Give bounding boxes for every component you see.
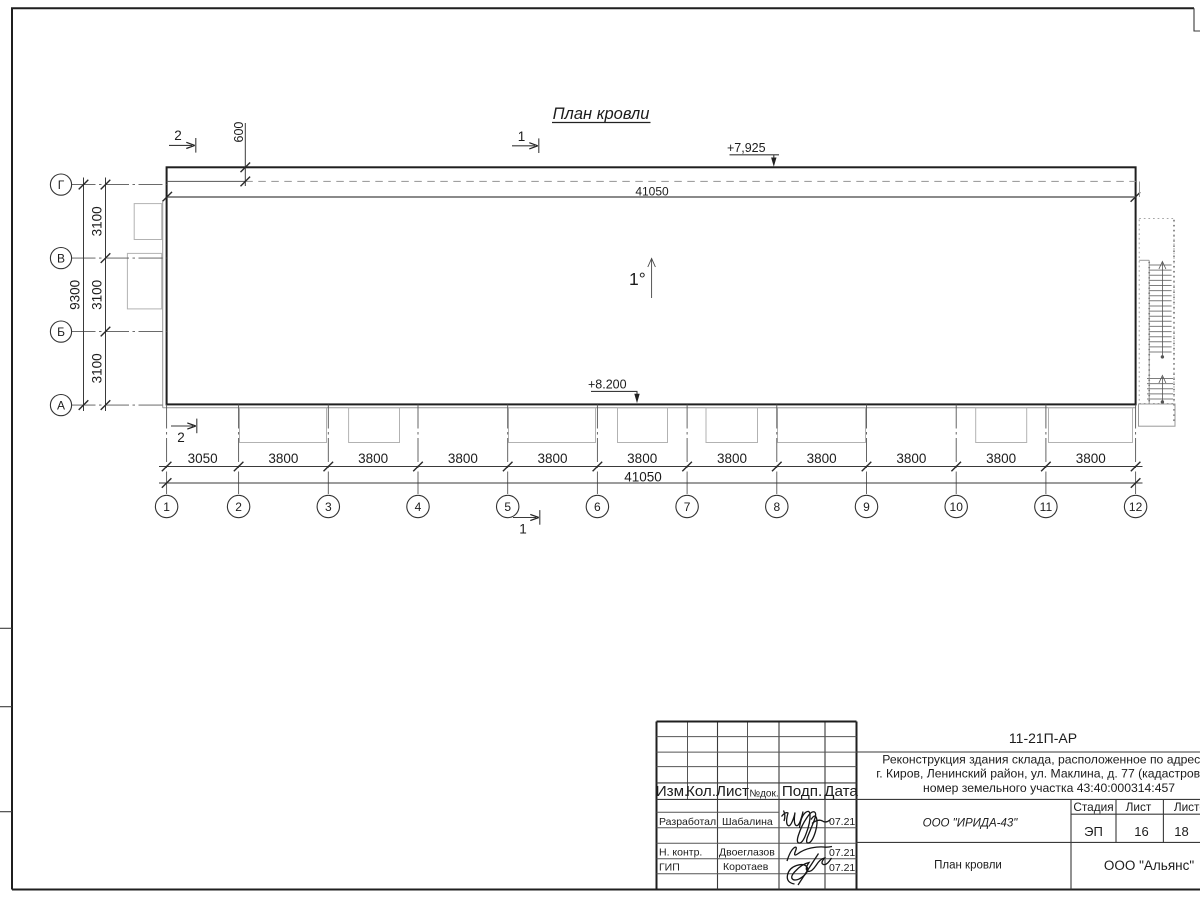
svg-text:11: 11	[1040, 500, 1053, 514]
svg-text:Лист: Лист	[716, 783, 749, 800]
svg-text:Кол.: Кол.	[686, 783, 716, 800]
svg-text:Листов: Листов	[1174, 800, 1200, 814]
svg-text:+7,925: +7,925	[727, 141, 766, 155]
svg-text:Двоеглазов: Двоеглазов	[719, 847, 775, 859]
svg-text:8: 8	[773, 500, 780, 514]
svg-text:ООО "Альянс": ООО "Альянс"	[1104, 858, 1194, 873]
svg-text:10: 10	[950, 500, 964, 514]
svg-text:3800: 3800	[627, 451, 657, 466]
svg-text:9300: 9300	[68, 280, 83, 310]
svg-text:ООО "ИРИДА-43": ООО "ИРИДА-43"	[923, 818, 1019, 830]
svg-text:18: 18	[1174, 824, 1188, 839]
svg-text:3800: 3800	[896, 451, 926, 466]
svg-text:В: В	[57, 252, 65, 266]
svg-text:План кровли: План кровли	[553, 105, 650, 123]
svg-text:А: А	[57, 399, 65, 413]
svg-text:3800: 3800	[537, 451, 567, 466]
svg-text:Лист: Лист	[1126, 800, 1152, 814]
svg-text:Г: Г	[58, 178, 65, 192]
svg-text:ГИП: ГИП	[659, 862, 680, 874]
svg-text:Подп.: Подп.	[782, 783, 822, 800]
svg-text:3800: 3800	[986, 451, 1016, 466]
svg-text:1: 1	[519, 522, 527, 537]
svg-text:Шабалина: Шабалина	[722, 816, 773, 828]
svg-text:Б: Б	[57, 325, 65, 339]
svg-text:2: 2	[174, 128, 182, 143]
svg-text:1°: 1°	[629, 269, 646, 289]
svg-text:3050: 3050	[188, 451, 218, 466]
svg-text:Изм.: Изм.	[656, 783, 689, 800]
svg-text:Стадия: Стадия	[1073, 800, 1113, 814]
svg-text:07.21: 07.21	[829, 862, 855, 874]
svg-text:2: 2	[177, 430, 185, 445]
svg-text:7: 7	[684, 500, 691, 514]
svg-text:Коротаев: Коротаев	[723, 861, 769, 873]
svg-text:3: 3	[325, 500, 332, 514]
svg-text:3800: 3800	[268, 451, 298, 466]
svg-text:Разработал: Разработал	[659, 816, 716, 828]
svg-text:12: 12	[1129, 500, 1143, 514]
svg-text:4: 4	[415, 500, 422, 514]
svg-text:6: 6	[594, 500, 601, 514]
svg-text:№док.: №док.	[749, 789, 778, 800]
svg-text:План кровли: План кровли	[934, 860, 1002, 872]
svg-text:3100: 3100	[90, 280, 105, 310]
svg-text:Н. контр.: Н. контр.	[659, 847, 702, 859]
svg-text:Дата: Дата	[824, 783, 858, 800]
svg-text:16: 16	[1134, 824, 1148, 839]
svg-text:5: 5	[504, 500, 511, 514]
svg-text:3800: 3800	[807, 451, 837, 466]
svg-text:11-21П-АР: 11-21П-АР	[1009, 730, 1077, 746]
svg-text:3100: 3100	[90, 353, 105, 383]
svg-text:3800: 3800	[1076, 451, 1106, 466]
svg-text:ЭП: ЭП	[1084, 824, 1103, 839]
svg-text:+8.200: +8.200	[588, 378, 627, 392]
svg-text:3800: 3800	[358, 451, 388, 466]
svg-text:1: 1	[518, 129, 526, 144]
svg-text:1: 1	[163, 500, 170, 514]
svg-text:3800: 3800	[717, 451, 747, 466]
svg-text:41050: 41050	[624, 470, 662, 485]
svg-text:2: 2	[235, 500, 242, 514]
svg-text:3100: 3100	[90, 206, 105, 236]
svg-text:Реконструкция здания склада, р: Реконструкция здания склада, расположенн…	[882, 753, 1200, 767]
svg-text:600: 600	[232, 122, 246, 143]
svg-text:г. Киров, Ленинский район, ул.: г. Киров, Ленинский район, ул. Маклина, …	[876, 767, 1200, 781]
svg-text:41050: 41050	[635, 185, 669, 199]
svg-text:номер земельного участка 43:40: номер земельного участка 43:40:000314:45…	[923, 781, 1175, 795]
svg-text:9: 9	[863, 500, 870, 514]
svg-text:3800: 3800	[448, 451, 478, 466]
svg-text:07.21: 07.21	[829, 816, 855, 828]
svg-text:07.21: 07.21	[829, 847, 855, 859]
